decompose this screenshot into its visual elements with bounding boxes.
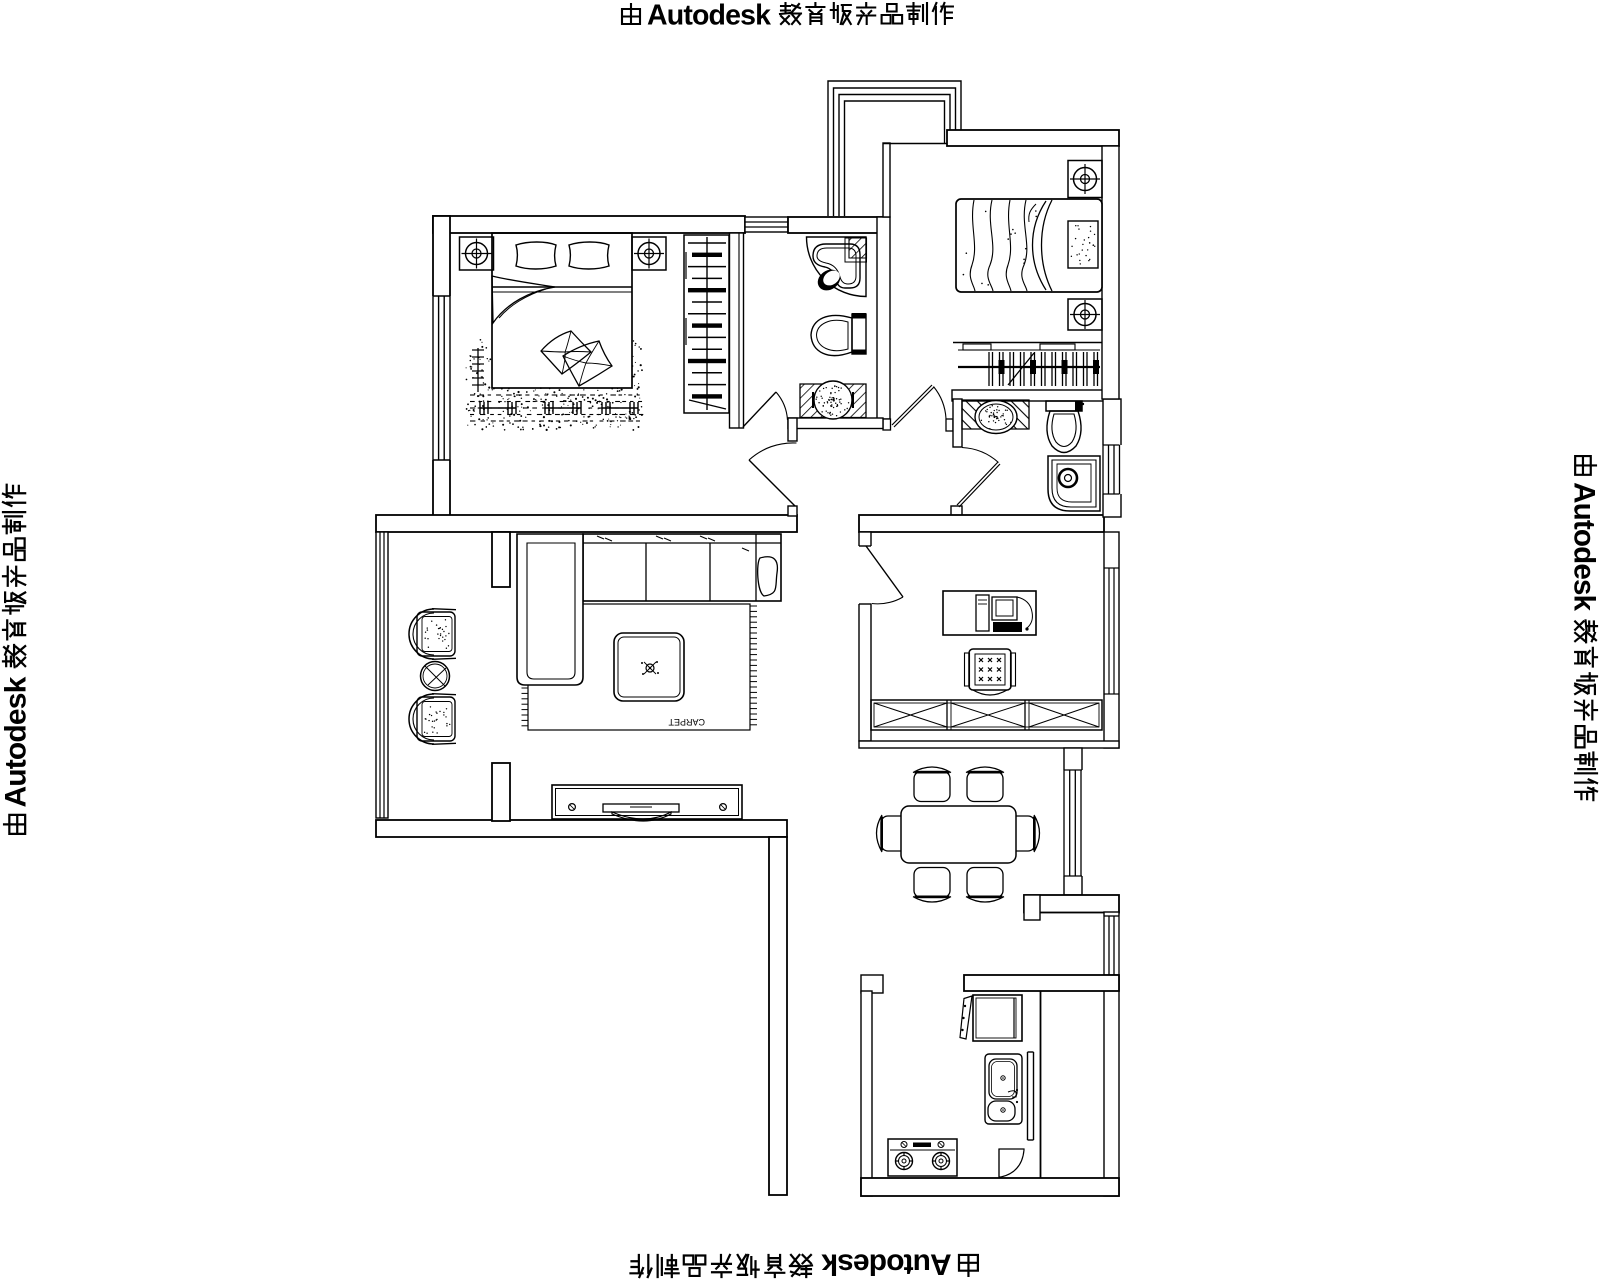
svg-text:Autodesk: Autodesk [647,0,771,32]
svg-text:Autodesk: Autodesk [821,1247,952,1280]
svg-text:Autodesk: Autodesk [0,676,33,807]
svg-text:CARPET: CARPET [668,717,705,727]
svg-text:Autodesk: Autodesk [1568,482,1600,611]
